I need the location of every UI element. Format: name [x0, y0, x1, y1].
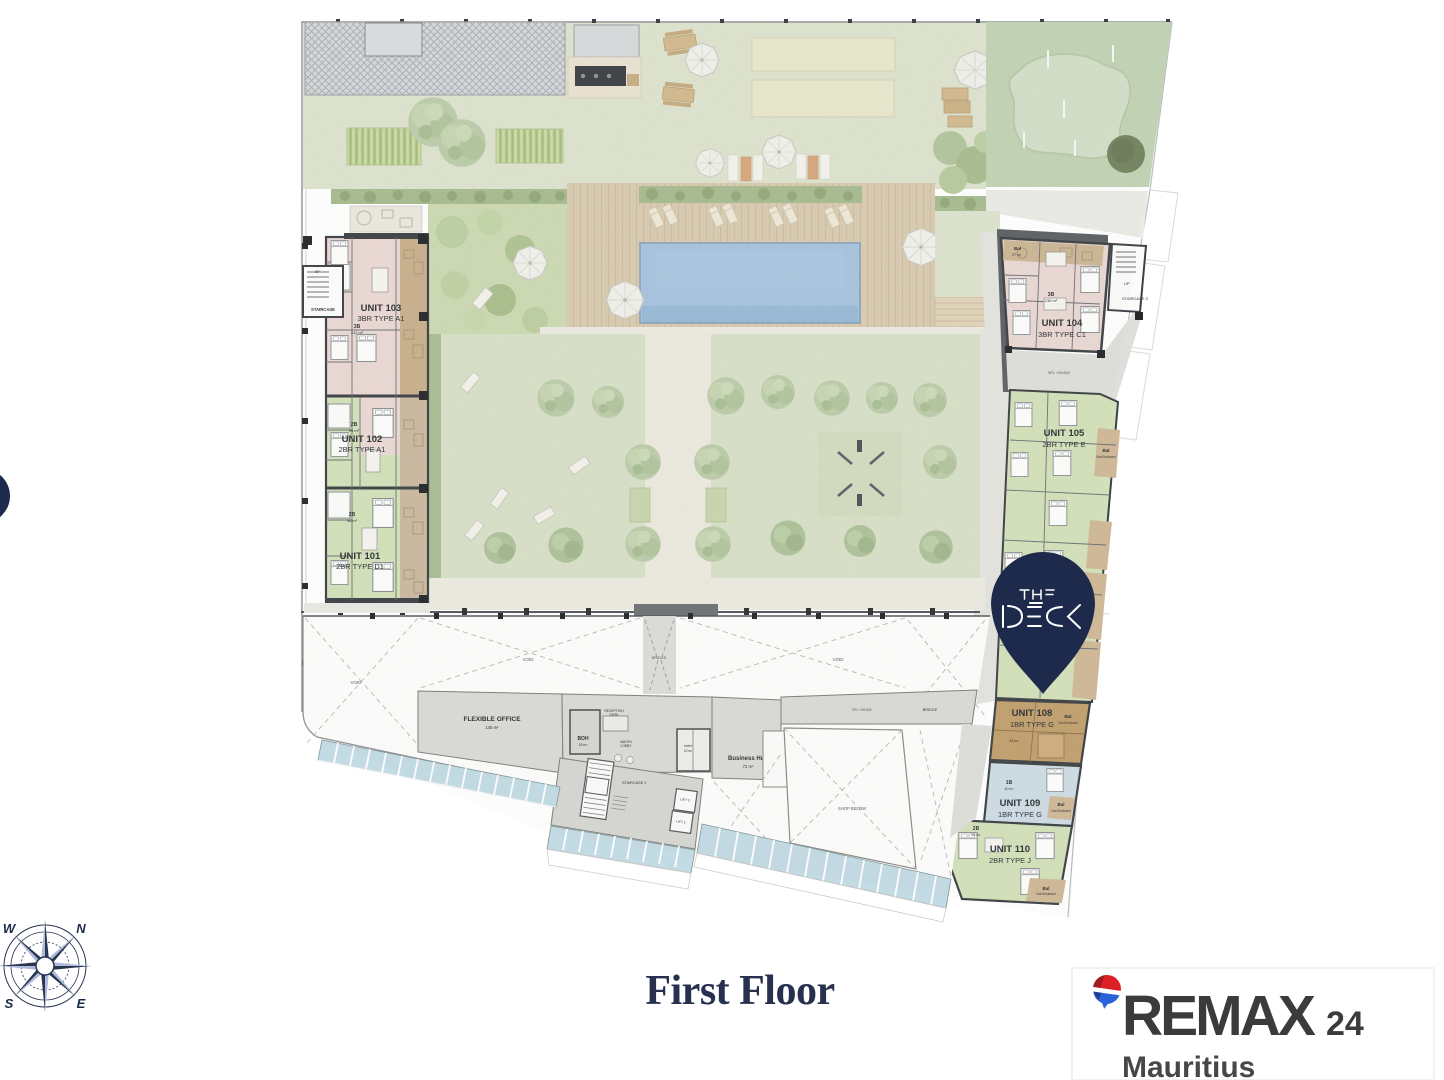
svg-text:First Floor: First Floor — [645, 968, 834, 1014]
svg-text:E: E — [77, 996, 86, 1011]
svg-text:REMAX: REMAX — [1122, 984, 1316, 1048]
svg-text:Mauritius: Mauritius — [1122, 1051, 1255, 1080]
svg-text:24: 24 — [1326, 1005, 1364, 1043]
svg-text:N: N — [76, 921, 86, 936]
svg-text:S: S — [5, 996, 14, 1011]
svg-text:W: W — [3, 921, 17, 936]
